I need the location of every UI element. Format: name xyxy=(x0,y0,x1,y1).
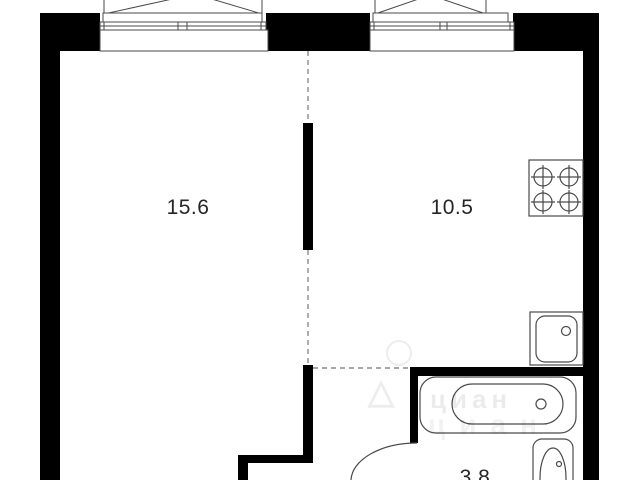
wall-left xyxy=(40,13,60,480)
room-area-label-living: 15.6 xyxy=(152,197,224,218)
washbasin-body xyxy=(533,439,573,480)
partition-hallway-vertical xyxy=(303,365,313,463)
partition-hallway-stub xyxy=(238,455,248,480)
partition-living-kitchen xyxy=(303,123,313,250)
window-sash-line xyxy=(195,0,262,14)
stove-burner-icon xyxy=(531,165,555,189)
stove-body xyxy=(529,160,583,216)
window-sash-line xyxy=(430,0,486,14)
floor-plan: 15.6 10.5 3.8 △ циан циан xyxy=(0,0,640,480)
kitchen-sink-icon xyxy=(530,312,583,365)
window-icon xyxy=(370,0,514,51)
stove-burner-icon xyxy=(531,190,555,214)
stove-burner-icon xyxy=(557,165,581,189)
room-area-label-kitchen: 10.5 xyxy=(416,197,488,218)
room-area-label-hallway: 3.8 xyxy=(445,467,505,480)
window-outer-ledge xyxy=(103,13,262,22)
wall-bathroom-top xyxy=(410,367,583,376)
window-sill xyxy=(370,30,514,51)
window-sash-line xyxy=(375,0,430,14)
window-icon xyxy=(100,0,268,51)
window-sash-line xyxy=(104,0,195,14)
floor-plan-drawing xyxy=(0,0,640,480)
wall-bathroom-left xyxy=(410,367,418,443)
zone-boundaries xyxy=(308,51,410,368)
stove-burner-icon xyxy=(557,190,581,214)
wall-right xyxy=(583,44,599,480)
washbasin-icon xyxy=(533,439,573,480)
door-swing-arc xyxy=(351,443,417,480)
stove-icon xyxy=(529,160,583,216)
partition-hallway-horizontal xyxy=(238,455,313,463)
window-outer-ledge xyxy=(373,13,508,22)
bathtub-icon xyxy=(420,377,576,433)
window-sill xyxy=(100,30,268,51)
wall-top-middle xyxy=(266,13,370,51)
sink-basin xyxy=(536,316,577,362)
